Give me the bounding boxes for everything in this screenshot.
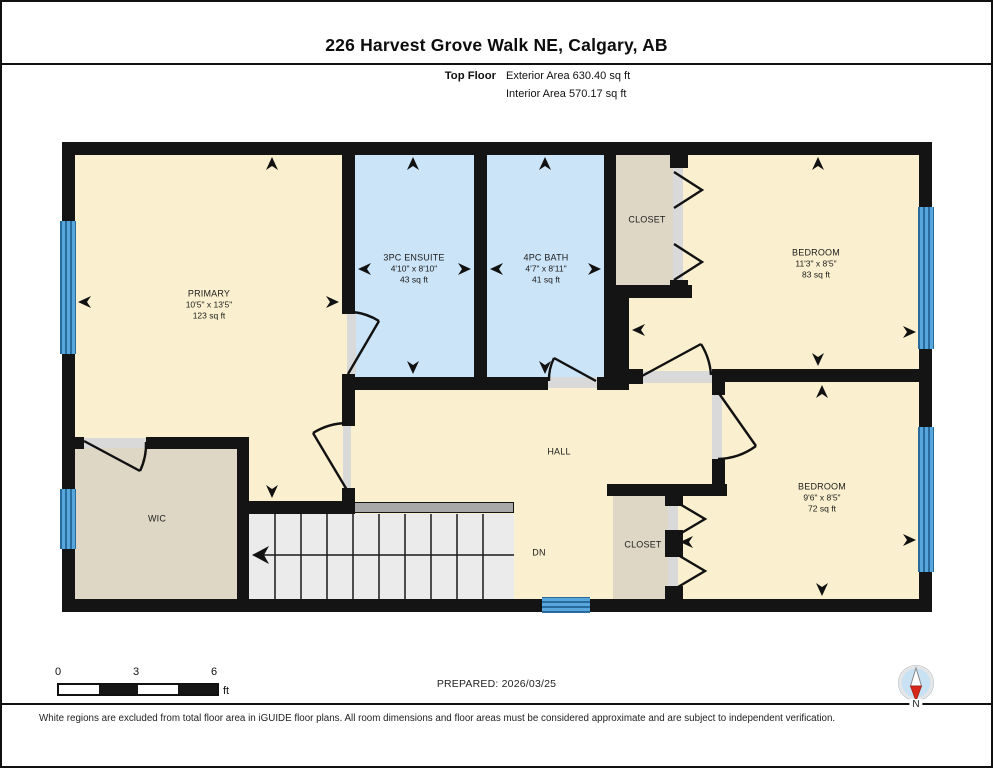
door-jamb	[712, 394, 722, 459]
door-jamb	[548, 377, 599, 388]
wall	[249, 501, 355, 514]
closet-track	[673, 166, 683, 284]
room-label-closet-bottom: CLOSET	[624, 540, 661, 551]
wall	[670, 280, 688, 298]
wall	[607, 484, 727, 496]
room-label-primary: PRIMARY 10'5" x 13'5" 123 sq ft	[186, 289, 233, 322]
floor-label: Top Floor	[2, 70, 496, 82]
room-label-closet-top: CLOSET	[628, 215, 665, 226]
stair-rail	[354, 502, 514, 513]
wall	[712, 369, 932, 382]
wall	[237, 437, 249, 612]
wall	[712, 369, 725, 395]
wall	[670, 148, 688, 168]
floor-plan-page: 226 Harvest Grove Walk NE, Calgary, AB T…	[0, 0, 993, 768]
wall	[355, 377, 548, 390]
room-label-ensuite: 3PC ENSUITE 4'10" x 8'10" 43 sq ft	[383, 253, 444, 286]
prepared-date: PREPARED: 2026/03/25	[2, 678, 991, 690]
wall	[342, 142, 355, 314]
wall	[342, 374, 355, 426]
wall	[604, 142, 616, 298]
room-label-bedroom-bottom: BEDROOM 9'6" x 8'5" 72 sq ft	[798, 482, 846, 515]
wall	[665, 530, 683, 557]
window	[60, 221, 76, 354]
wall	[629, 369, 643, 384]
scale-tick-0: 0	[55, 666, 61, 678]
staircase	[249, 514, 514, 599]
page-title: 226 Harvest Grove Walk NE, Calgary, AB	[2, 35, 991, 56]
exterior-area: Exterior Area 630.40 sq ft	[506, 70, 630, 82]
wall	[62, 142, 932, 155]
stairs-dn-label: DN	[532, 548, 545, 559]
interior-area: Interior Area 570.17 sq ft	[506, 88, 626, 100]
door-jamb	[343, 426, 351, 488]
window	[542, 597, 590, 613]
wall	[604, 285, 629, 390]
room-label-wic: WIC	[148, 514, 166, 525]
wall	[665, 496, 683, 506]
scale-tick-6: 6	[211, 666, 217, 678]
footer-divider	[2, 703, 991, 705]
window	[918, 427, 934, 572]
disclaimer-text: White regions are excluded from total fl…	[39, 713, 835, 724]
door-jamb	[347, 312, 356, 374]
door-jamb	[642, 371, 712, 383]
door-jamb	[82, 438, 146, 448]
room-label-bedroom-top: BEDROOM 11'3" x 8'5" 83 sq ft	[792, 248, 840, 281]
window	[918, 207, 934, 349]
room-label-hall: HALL	[547, 447, 570, 458]
compass-north-label: N	[909, 699, 922, 710]
wall	[62, 599, 932, 612]
header-divider	[2, 63, 991, 65]
wall	[474, 142, 487, 390]
wall	[146, 437, 249, 449]
scale-tick-3: 3	[133, 666, 139, 678]
room-label-bath: 4PC BATH 4'7" x 8'11" 41 sq ft	[524, 253, 569, 286]
wall	[665, 586, 683, 600]
wall	[68, 437, 84, 449]
window	[60, 489, 76, 549]
wall	[597, 377, 610, 390]
